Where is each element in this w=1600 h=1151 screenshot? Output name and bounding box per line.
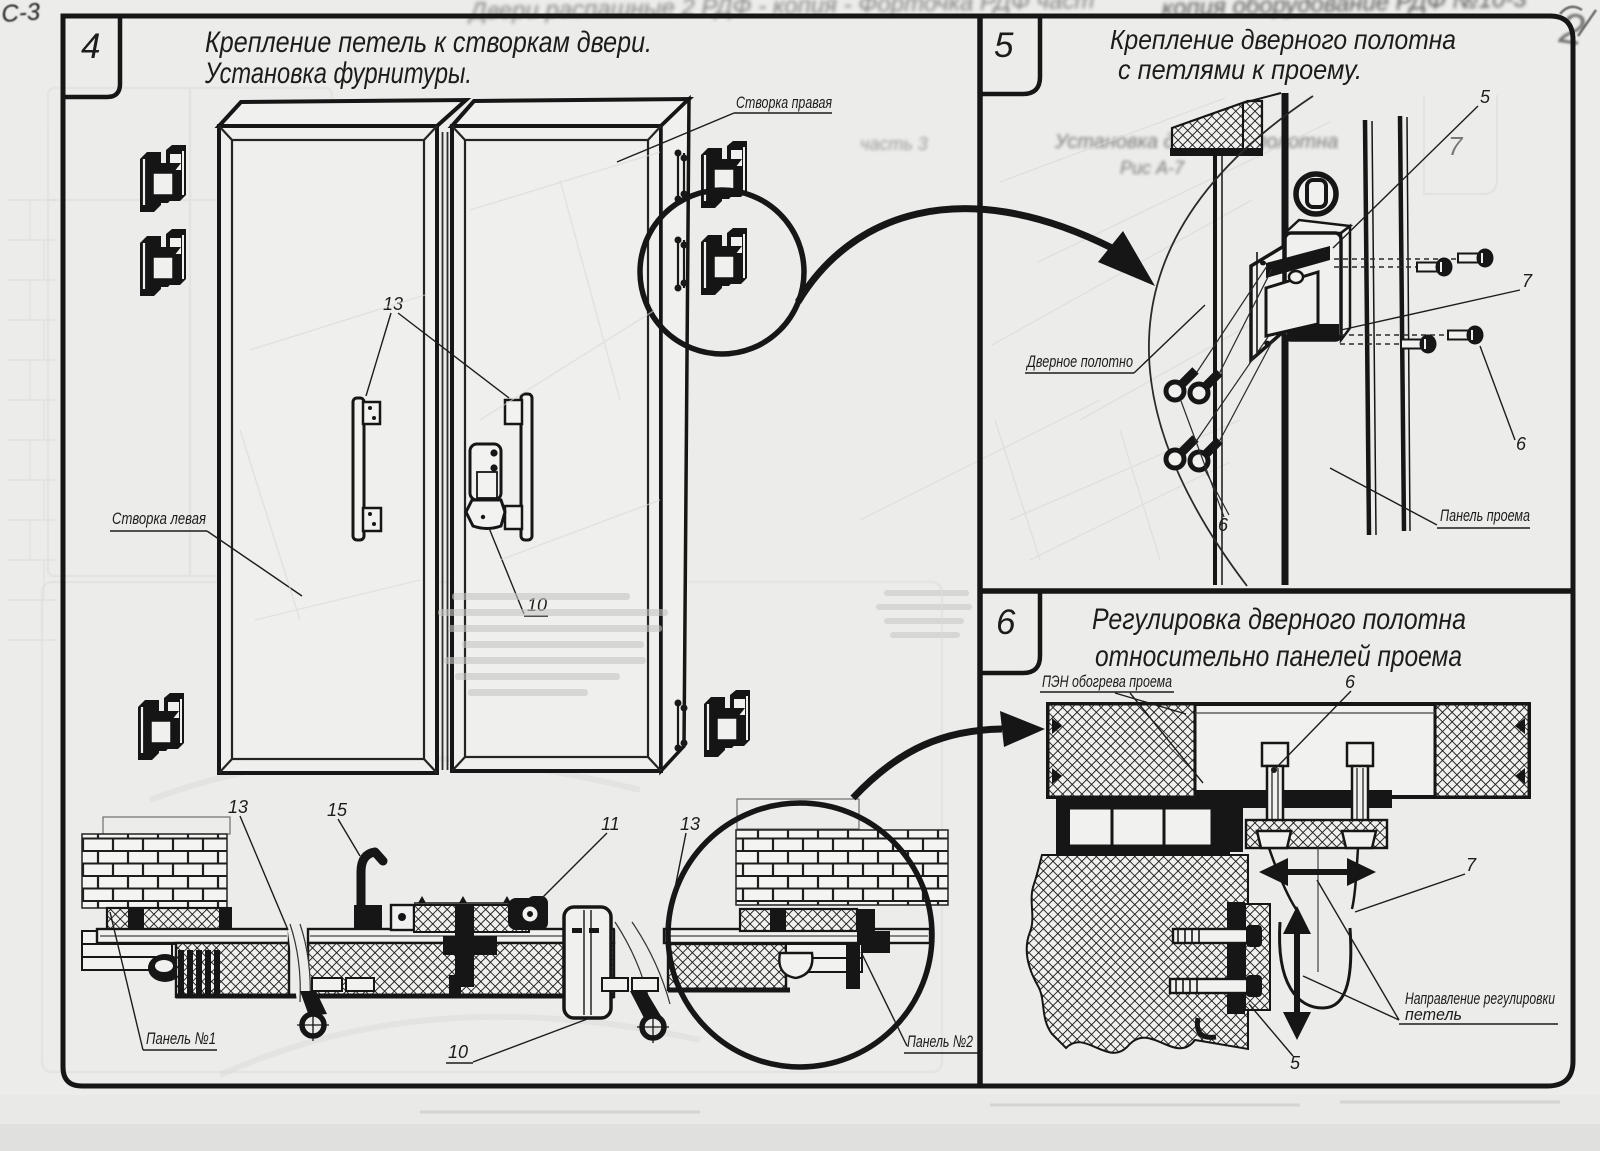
svg-text:Установка фурнитуры.: Установка фурнитуры. (204, 57, 472, 90)
svg-text:7: 7 (1522, 271, 1533, 291)
svg-text:Панель №2: Панель №2 (907, 1032, 973, 1051)
svg-text:7: 7 (1448, 131, 1464, 161)
svg-text:5: 5 (1480, 87, 1491, 107)
svg-text:часть 3: часть 3 (860, 134, 928, 154)
svg-text:относительно панелей проема: относительно панелей проема (1095, 640, 1462, 673)
svg-text:6: 6 (1516, 434, 1527, 454)
svg-text:Регулировка дверного полотна: Регулировка дверного полотна (1092, 603, 1466, 636)
svg-text:11: 11 (601, 814, 620, 834)
svg-text:Рис А-7: Рис А-7 (1120, 158, 1185, 178)
svg-text:Панель проема: Панель проема (1440, 506, 1530, 525)
svg-text:4: 4 (81, 27, 100, 66)
svg-text:ПЭН обогрева проема: ПЭН обогрева проема (1042, 672, 1172, 691)
svg-text:Створка правая: Створка правая (736, 93, 832, 112)
svg-text:Крепление дверного полотна: Крепление дверного полотна (1110, 24, 1456, 55)
svg-text:петель: петель (1405, 1005, 1462, 1024)
svg-text:5: 5 (1290, 1053, 1301, 1073)
svg-text:6: 6 (996, 603, 1016, 642)
svg-text:Панель №1: Панель №1 (146, 1029, 216, 1048)
svg-text:13: 13 (228, 797, 248, 817)
svg-text:10: 10 (448, 1042, 468, 1062)
svg-text:7: 7 (1466, 855, 1477, 875)
svg-text:13: 13 (680, 814, 700, 834)
svg-text:13: 13 (383, 294, 403, 314)
svg-text:6: 6 (1345, 672, 1356, 692)
svg-text:Дверное полотно: Дверное полотно (1026, 352, 1133, 371)
svg-text:6: 6 (1218, 515, 1229, 535)
svg-text:15: 15 (327, 800, 348, 820)
svg-text:с петлями к проему.: с петлями к проему. (1118, 54, 1362, 85)
svg-text:С-3: С-3 (1, 0, 42, 28)
svg-text:Створка левая: Створка левая (112, 509, 206, 528)
svg-text:Крепление петель к створкам дв: Крепление петель к створкам двери. (205, 26, 652, 59)
svg-text:5: 5 (994, 26, 1014, 65)
